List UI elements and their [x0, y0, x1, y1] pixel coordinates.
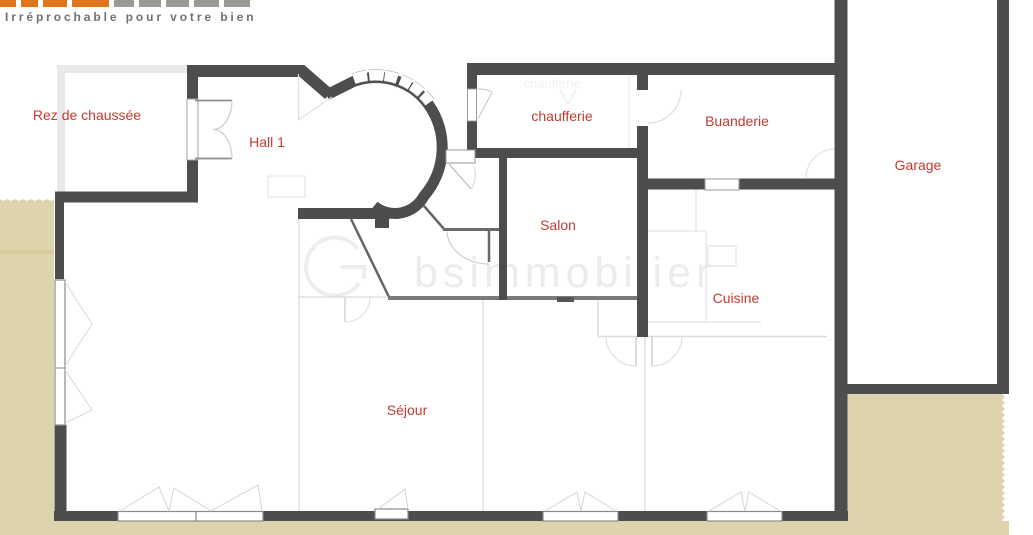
svg-text:Buanderie: Buanderie: [705, 113, 769, 129]
svg-text:Rez de chaussée: Rez de chaussée: [33, 107, 141, 123]
svg-text:Séjour: Séjour: [387, 402, 428, 418]
svg-text:Hall 1: Hall 1: [249, 134, 285, 150]
svg-text:chaufferie: chaufferie: [531, 108, 592, 124]
svg-text:Cuisine: Cuisine: [713, 290, 760, 306]
svg-text:chaufferie: chaufferie: [524, 76, 581, 91]
svg-text:bsimmobilier: bsimmobilier: [414, 249, 715, 297]
svg-text:Irréprochable pour votre bien: Irréprochable pour votre bien: [5, 10, 256, 24]
svg-text:Salon: Salon: [540, 217, 576, 233]
svg-text:Garage: Garage: [895, 157, 942, 173]
